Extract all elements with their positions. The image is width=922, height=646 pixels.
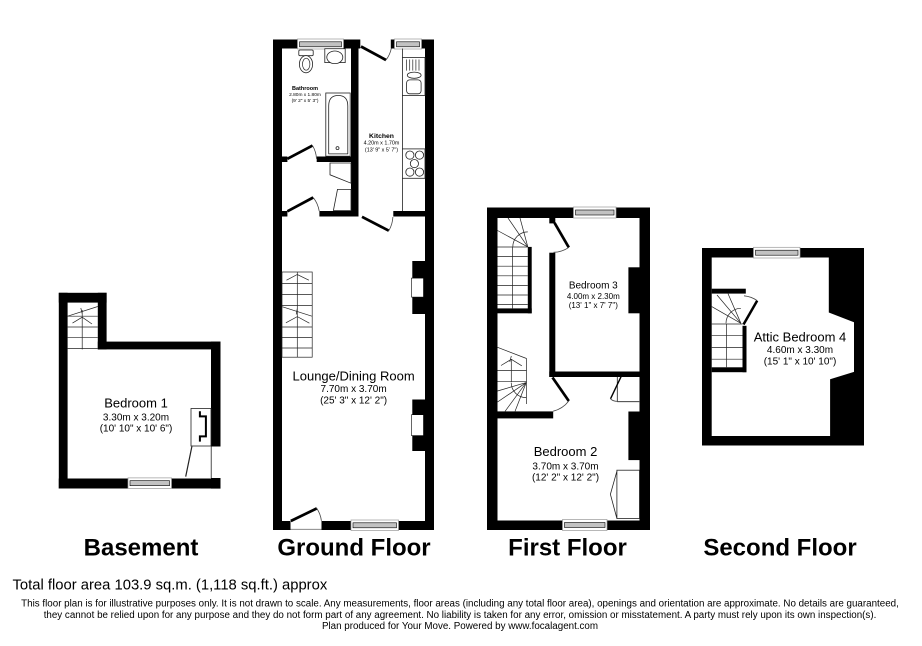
svg-text:3.70m x 3.70m: 3.70m x 3.70m: [532, 462, 598, 473]
svg-text:2.80m x 1.80m: 2.80m x 1.80m: [289, 92, 321, 98]
svg-text:Bedroom 2: Bedroom 2: [534, 444, 598, 459]
svg-text:Total floor area 103.9 sq.m. (: Total floor area 103.9 sq.m. (1,118 sq.f…: [13, 578, 328, 594]
svg-text:7.70m x 3.70m: 7.70m x 3.70m: [321, 384, 387, 395]
svg-text:3.30m x 3.20m: 3.30m x 3.20m: [103, 412, 169, 423]
svg-text:4.60m x 3.30m: 4.60m x 3.30m: [767, 345, 833, 356]
svg-text:Bedroom 1: Bedroom 1: [104, 396, 168, 411]
svg-text:Basement: Basement: [84, 535, 199, 562]
svg-text:they cannot be relied upon for: they cannot be relied upon for any purpo…: [44, 610, 877, 621]
svg-text:First Floor: First Floor: [508, 535, 627, 562]
svg-text:(13' 9" x 5' 7"): (13' 9" x 5' 7"): [365, 148, 398, 154]
svg-text:Lounge/Dining Room: Lounge/Dining Room: [293, 369, 415, 384]
svg-text:Second Floor: Second Floor: [703, 535, 856, 562]
svg-text:Bedroom 3: Bedroom 3: [569, 281, 618, 292]
svg-text:Attic Bedroom 4: Attic Bedroom 4: [754, 330, 847, 345]
svg-text:(25' 3" x 12' 2"): (25' 3" x 12' 2"): [320, 395, 387, 406]
svg-text:4.00m x 2.30m: 4.00m x 2.30m: [567, 292, 620, 301]
svg-text:Kitchen: Kitchen: [369, 133, 394, 140]
svg-text:Ground Floor: Ground Floor: [277, 535, 430, 562]
svg-text:Plan produced for Your Move. P: Plan produced for Your Move. Powered by …: [322, 621, 598, 632]
svg-text:(12' 2" x 12' 2"): (12' 2" x 12' 2"): [532, 472, 599, 483]
svg-text:4.20m x 1.70m: 4.20m x 1.70m: [364, 141, 400, 147]
svg-text:(9' 2" x 5' 3"): (9' 2" x 5' 3"): [292, 98, 319, 104]
svg-text:(13' 1" x 7' 7"): (13' 1" x 7' 7"): [569, 301, 619, 310]
svg-text:Bathroom: Bathroom: [292, 86, 318, 92]
svg-text:(15' 1" x 10' 10"): (15' 1" x 10' 10"): [764, 357, 837, 368]
svg-text:This floor plan is for illustr: This floor plan is for illustrative purp…: [21, 598, 899, 609]
svg-text:(10' 10" x 10' 6"): (10' 10" x 10' 6"): [100, 423, 173, 434]
